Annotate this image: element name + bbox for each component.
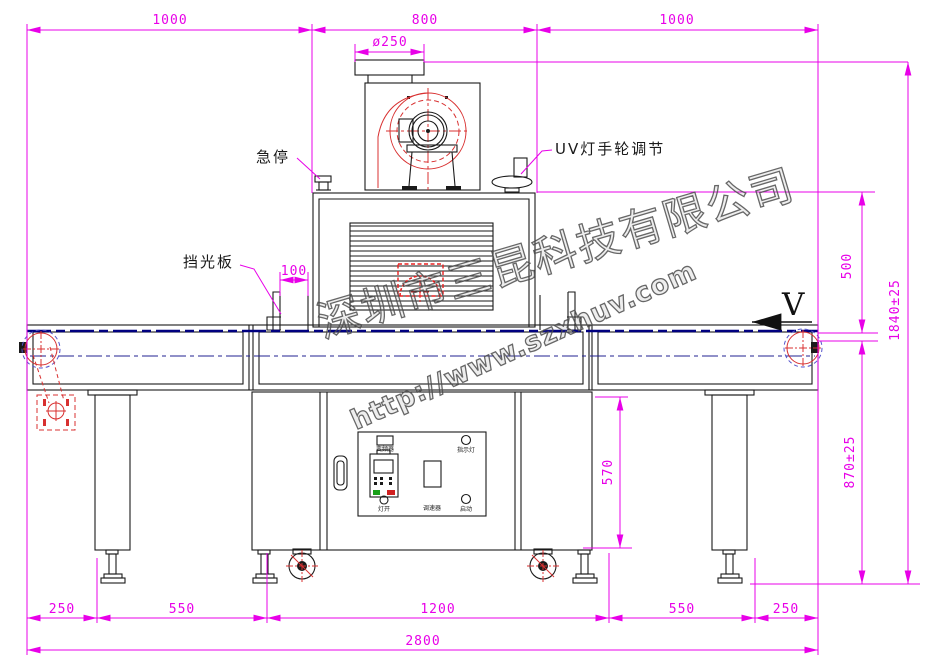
- duct-flange: [355, 60, 424, 75]
- vfd-key: [380, 477, 383, 480]
- duct-neck: [368, 75, 412, 83]
- drawing-svg: 深圳市三昆科技有限公司 http://www.szxhuv.com 1000 8…: [0, 0, 926, 665]
- label-speed: 调速器: [423, 504, 441, 512]
- vfd-stop-key: [387, 490, 395, 495]
- ext-belt-level: [818, 333, 878, 341]
- motor-slot: [43, 399, 46, 406]
- light-shield-left: [267, 292, 308, 330]
- label-inverter: 变频器: [376, 445, 394, 453]
- shield-bracket: [267, 317, 281, 330]
- dim-text-bot-550a: 550: [169, 602, 195, 617]
- screw-foot: [101, 550, 125, 583]
- vfd-key: [389, 477, 392, 480]
- start-button: [462, 495, 471, 504]
- door-handle-inner: [337, 461, 344, 485]
- motor-slot: [66, 419, 69, 426]
- leg-plate-left: [88, 390, 137, 395]
- dim-text-flange-dia: ø250: [372, 35, 407, 50]
- feet: [101, 549, 742, 583]
- dim-text-bot-250b: 250: [773, 602, 799, 617]
- dim-text-bot-1200: 1200: [420, 602, 455, 617]
- cabinet: [252, 392, 592, 550]
- leg-right: [712, 395, 747, 550]
- label-estop: 急停: [256, 148, 290, 166]
- stand-structure: [88, 390, 754, 550]
- ext-vertical-main: [27, 24, 818, 655]
- screw-foot: [573, 550, 597, 583]
- emergency-stop-button: [315, 176, 331, 190]
- dim-text-shield-100: 100: [281, 264, 307, 279]
- vfd-run-key: [373, 490, 380, 495]
- uv-machine-drawing: 深圳市三昆科技有限公司 http://www.szxhuv.com 1000 8…: [0, 0, 926, 665]
- dimension-lines: [27, 24, 920, 655]
- label-lamp-on: 灯开: [378, 505, 390, 513]
- handwheel-disc: [492, 176, 532, 188]
- indicator-lamp: [462, 436, 471, 445]
- uv-handwheel: [492, 158, 532, 192]
- dim-text-top-800: 800: [412, 13, 438, 28]
- blower-assembly: [355, 60, 480, 190]
- vfd-key: [374, 482, 377, 485]
- motor-shaft: [426, 129, 430, 133]
- vfd-key: [389, 482, 392, 485]
- dim-text-570: 570: [601, 459, 616, 485]
- inverter-display: [377, 436, 393, 445]
- control-panel: [358, 432, 486, 516]
- motor-slot: [66, 399, 69, 406]
- vfd-key: [380, 482, 383, 485]
- label-light-shield: 挡光板: [183, 253, 234, 271]
- motor-slot: [43, 419, 46, 426]
- dim-text-1840: 1840±25: [888, 279, 903, 341]
- dim-text-top-1000a: 1000: [152, 13, 187, 28]
- stand-foot: [402, 186, 417, 190]
- vfd-screen: [374, 460, 393, 473]
- fan-volute: [378, 93, 428, 188]
- estop-stem: [319, 182, 328, 190]
- label-uv-handwheel: UV灯手轮调节: [555, 140, 665, 158]
- dim-text-500: 500: [840, 253, 855, 279]
- screw-foot: [718, 550, 742, 583]
- label-start: 启动: [460, 505, 472, 513]
- conveyor-inner-right: [598, 332, 812, 384]
- caster-wheel: [286, 549, 318, 582]
- conveyor-inner-left: [33, 332, 243, 384]
- roller-right-cross: [785, 330, 821, 366]
- dim-text-2800: 2800: [405, 634, 440, 649]
- dim-text-top-1000b: 1000: [659, 13, 694, 28]
- handwheel-base: [505, 188, 519, 192]
- drive-motor-cross: [46, 401, 66, 421]
- shield-plate: [273, 292, 308, 330]
- fan-box: [365, 83, 480, 190]
- leg-plate-right: [705, 390, 754, 395]
- speed-knob: [424, 461, 441, 487]
- dim-text-870: 870±25: [843, 436, 858, 489]
- leader-estop: [297, 158, 320, 179]
- leader-shield: [240, 265, 281, 314]
- handwheel-shaft: [514, 158, 527, 177]
- leg-left: [95, 395, 130, 550]
- stand-foot: [446, 186, 461, 190]
- dim-text-bot-550b: 550: [669, 602, 695, 617]
- dim-text-bot-250a: 250: [49, 602, 75, 617]
- vfd-key: [374, 477, 377, 480]
- label-indicator: 指示灯: [457, 446, 475, 454]
- screw-foot: [253, 550, 277, 583]
- label-belt-direction: V: [781, 287, 805, 323]
- caster-wheel: [527, 549, 559, 582]
